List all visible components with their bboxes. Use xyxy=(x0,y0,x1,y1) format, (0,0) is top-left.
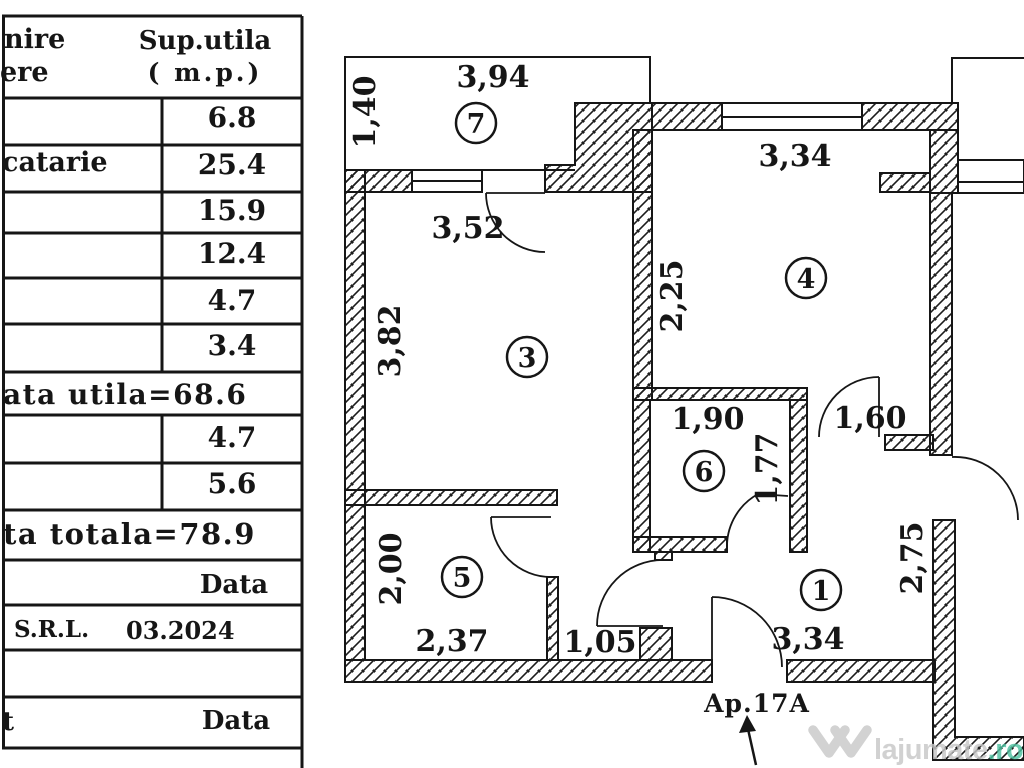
scanned-floorplan-page: { "table": { "header": { "name_col_top":… xyxy=(0,0,1024,768)
room-number: 7 xyxy=(467,109,486,140)
data-label: Data xyxy=(162,708,310,735)
dim-room3-height: 3,82 xyxy=(373,304,408,377)
wall-segment xyxy=(787,660,935,682)
window xyxy=(958,160,1024,193)
dim-hall-width: 3,34 xyxy=(771,622,844,657)
apartment-label: Ap.17A xyxy=(703,689,810,718)
right-room-door-arc xyxy=(952,457,1018,520)
wall-segment xyxy=(652,103,722,130)
watermark-brand: lajumate xyxy=(874,734,988,766)
wall-segment xyxy=(633,400,650,552)
room-name-cut: catarie xyxy=(2,149,108,177)
room-badge-5: 5 xyxy=(442,557,482,597)
area-value: 4.7 xyxy=(164,286,300,315)
dim-balcony-depth: 1,40 xyxy=(348,75,383,148)
table-header-name-bottom: ere xyxy=(0,59,49,87)
dim-room6-height: 1,77 xyxy=(750,432,785,505)
wall-segment xyxy=(345,660,712,682)
area-value: 4.7 xyxy=(164,423,300,452)
wall-segment xyxy=(885,435,933,450)
dim-corridor: 1,05 xyxy=(563,625,636,660)
room-number: 5 xyxy=(453,563,472,594)
area-value: 6.8 xyxy=(164,103,300,132)
wall-segment xyxy=(655,552,672,560)
dim-hall-right: 2,75 xyxy=(895,521,930,594)
wall-segment xyxy=(930,130,958,193)
watermark-tld: .ro xyxy=(988,734,1024,766)
dim-hall-door: 1,60 xyxy=(833,401,906,436)
grand-area-total: ta totala=78.9 xyxy=(3,519,256,549)
wall-segment xyxy=(862,103,958,130)
wall-segment xyxy=(633,130,652,400)
wall-segment xyxy=(930,193,952,455)
stamp-date: 03.2024 xyxy=(126,618,235,643)
room-number: 3 xyxy=(518,343,537,374)
dim-room4-width: 3,34 xyxy=(758,139,831,174)
wall-segment xyxy=(345,170,412,192)
door-arc xyxy=(491,517,551,577)
company-suffix: S.R.L. xyxy=(14,618,89,642)
room5-door xyxy=(491,517,551,577)
corridor-door xyxy=(597,560,663,626)
wall-segment xyxy=(790,400,807,552)
entry-arrow-line xyxy=(748,729,756,765)
watermark: lajumate.ro xyxy=(813,730,1023,766)
wall-segment xyxy=(345,490,557,505)
dim-room3-width: 3,52 xyxy=(431,211,504,246)
dim-balcony-width: 3,94 xyxy=(456,60,529,95)
room-badge-3: 3 xyxy=(507,337,547,377)
wall-segment xyxy=(547,577,558,660)
dim-room5-width: 2,37 xyxy=(415,624,488,659)
table-header-area-bottom: ( m.p.) xyxy=(130,60,280,86)
area-value: 25.4 xyxy=(164,150,300,179)
wall-segment xyxy=(880,173,930,192)
table-header-area-top: Sup.utila xyxy=(130,28,280,55)
table-header-name-top: nire xyxy=(4,26,65,54)
area-value: 12.4 xyxy=(164,239,300,268)
room-badge-4: 4 xyxy=(786,258,826,298)
room-number: 4 xyxy=(797,264,816,295)
area-value: 3.4 xyxy=(164,331,300,360)
dim-room6-width: 1,90 xyxy=(671,402,744,437)
watermark-text: lajumate.ro xyxy=(874,734,1023,766)
door-arc xyxy=(597,560,663,626)
cut-text: t xyxy=(2,709,14,736)
wall-segment xyxy=(933,520,1024,760)
useful-area-total: ata utila=68.6 xyxy=(3,380,247,409)
data-label: Data xyxy=(160,572,308,599)
room-badge-7: 7 xyxy=(456,103,496,143)
room-badge-6: 6 xyxy=(684,451,724,491)
room-badge-1: 1 xyxy=(801,570,841,610)
wall-segment xyxy=(345,170,365,660)
area-value: 5.6 xyxy=(164,469,300,498)
wall-segment xyxy=(633,537,727,552)
apartment-entry: Ap.17A xyxy=(703,689,810,765)
balcony-right-outline xyxy=(952,58,1024,102)
room-number: 1 xyxy=(812,576,831,607)
watermark-logo-icon xyxy=(835,730,867,753)
dim-room5-height: 2,00 xyxy=(374,532,409,605)
wall-segment xyxy=(633,388,807,400)
area-value: 15.9 xyxy=(164,196,300,225)
dim-room4-left: 2,25 xyxy=(655,259,690,332)
room-number: 6 xyxy=(695,457,714,488)
wall-segment xyxy=(640,628,672,660)
